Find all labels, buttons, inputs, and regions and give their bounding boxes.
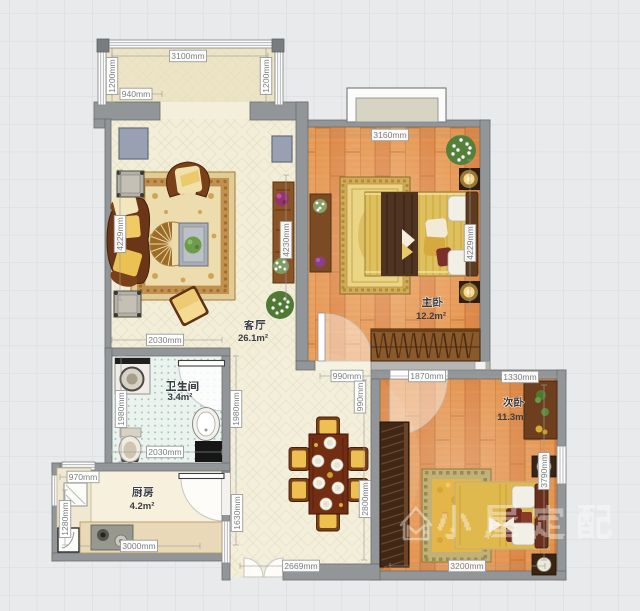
svg-text:12.2m²: 12.2m² [416, 311, 446, 322]
svg-text:11.3m²: 11.3m² [497, 412, 527, 423]
svg-text:1630mm: 1630mm [232, 496, 242, 529]
svg-text:990mm: 990mm [355, 383, 365, 412]
svg-text:3.4m²: 3.4m² [168, 392, 193, 403]
svg-text:1280mm: 1280mm [60, 502, 70, 535]
svg-text:1200mm: 1200mm [261, 59, 271, 92]
svg-text:2800mm: 2800mm [360, 482, 370, 515]
svg-text:2030mm: 2030mm [148, 447, 181, 457]
svg-text:2669mm: 2669mm [284, 561, 317, 571]
svg-text:1980mm: 1980mm [116, 392, 126, 425]
svg-text:970mm: 970mm [69, 472, 98, 482]
svg-text:3000mm: 3000mm [122, 541, 155, 551]
svg-text:1870mm: 1870mm [410, 371, 443, 381]
svg-text:3160mm: 3160mm [373, 130, 406, 140]
svg-text:4.2m²: 4.2m² [130, 501, 155, 512]
svg-text:2030mm: 2030mm [148, 335, 181, 345]
svg-text:26.1m²: 26.1m² [238, 333, 268, 344]
svg-text:3200mm: 3200mm [450, 561, 483, 571]
svg-text:1330mm: 1330mm [503, 372, 536, 382]
svg-text:990mm: 990mm [333, 371, 362, 381]
svg-text:4230mm: 4230mm [281, 223, 291, 256]
svg-text:3100mm: 3100mm [171, 51, 204, 61]
svg-text:3790mm: 3790mm [539, 454, 549, 487]
svg-text:4229mm: 4229mm [115, 217, 125, 250]
svg-text:1980mm: 1980mm [231, 392, 241, 425]
svg-text:940mm: 940mm [122, 89, 151, 99]
svg-text:4229mm: 4229mm [465, 226, 475, 259]
svg-text:1200mm: 1200mm [107, 59, 117, 92]
